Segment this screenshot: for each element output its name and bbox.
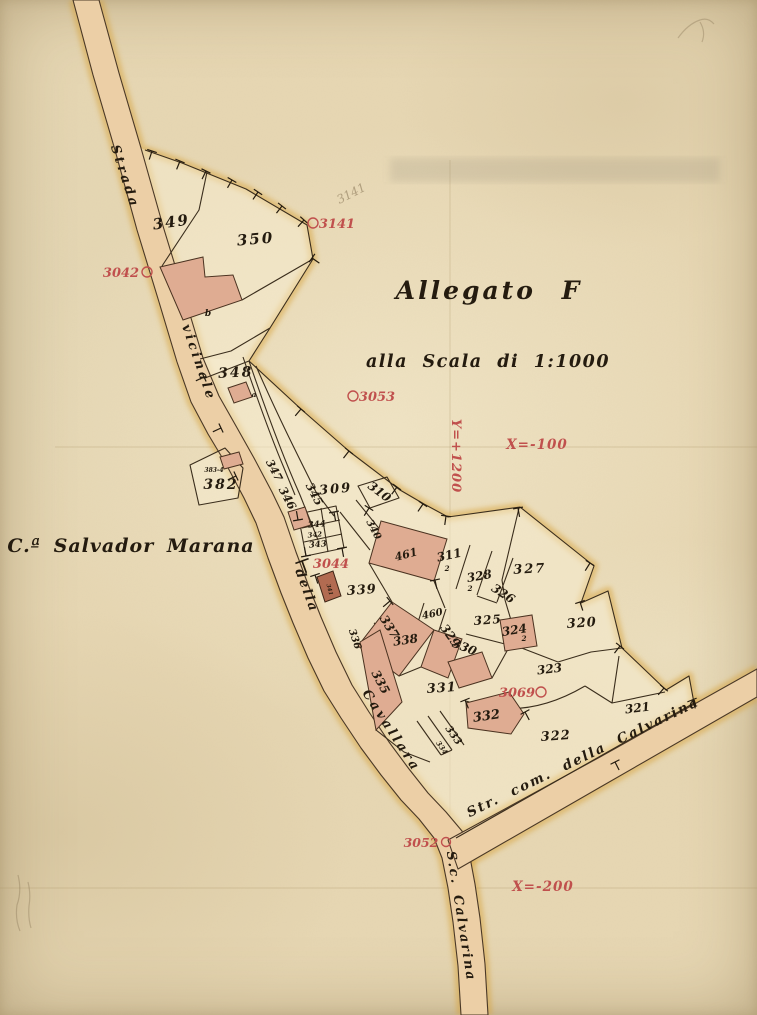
parcel-label-350: 350 (236, 228, 275, 249)
parcel-label-320: 320 (566, 615, 597, 632)
map-svg: Strada vicinale della Cavallara Str. com… (0, 0, 757, 1015)
parcel-label-382: 382 (203, 477, 238, 493)
parcel-label-348: 348 (218, 364, 254, 382)
trig-label-3052: 3052 (404, 835, 439, 850)
gray-smudge (390, 158, 720, 182)
map-scale-note: alla Scala di 1:1000 (366, 352, 610, 372)
trig-label-3044: 3044 (313, 557, 349, 572)
building-letter-a: a (252, 390, 257, 399)
parcel-label-331: 331 (426, 680, 457, 697)
parcel-label-343: 343 (309, 539, 328, 551)
parcel-label-339: 339 (346, 582, 377, 599)
parcel-label-325: 325 (473, 612, 502, 628)
parcel-label-342: 342 (307, 529, 322, 539)
building-letter-b: b (205, 309, 211, 319)
place-label-salvador-marana: C.ª Salvador Marana (7, 535, 254, 557)
parcel-label-328-sub: 2 (467, 584, 473, 593)
grid-label-y1200: Y=+1200 (448, 419, 463, 493)
cadastral-map: Strada vicinale della Cavallara Str. com… (0, 0, 757, 1015)
parcel-label-322: 322 (540, 728, 571, 745)
parcel-label-383-4: 383-4 (204, 467, 223, 474)
parcel-label-309: 309 (319, 481, 353, 499)
trig-label-3053: 3053 (359, 390, 395, 405)
trig-label-3141: 3141 (319, 217, 355, 232)
parcel-label-311-sub: 2 (444, 564, 450, 573)
trig-label-3042: 3042 (103, 266, 139, 281)
map-title: Allegato F (394, 276, 583, 305)
parcel-label-327: 327 (513, 561, 547, 578)
trig-label-3069: 3069 (499, 686, 535, 701)
parcel-label-324-sub: 2 (521, 634, 527, 643)
grid-label-x200: X=-200 (511, 879, 574, 895)
grid-label-x100: X=-100 (505, 437, 568, 453)
